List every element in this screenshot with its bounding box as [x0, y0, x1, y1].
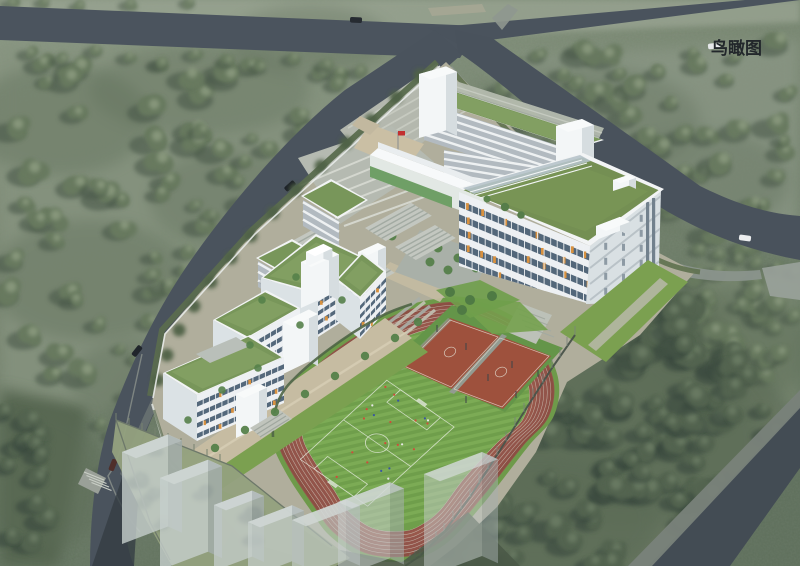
svg-text:鸟瞰图: 鸟瞰图 — [711, 38, 762, 58]
